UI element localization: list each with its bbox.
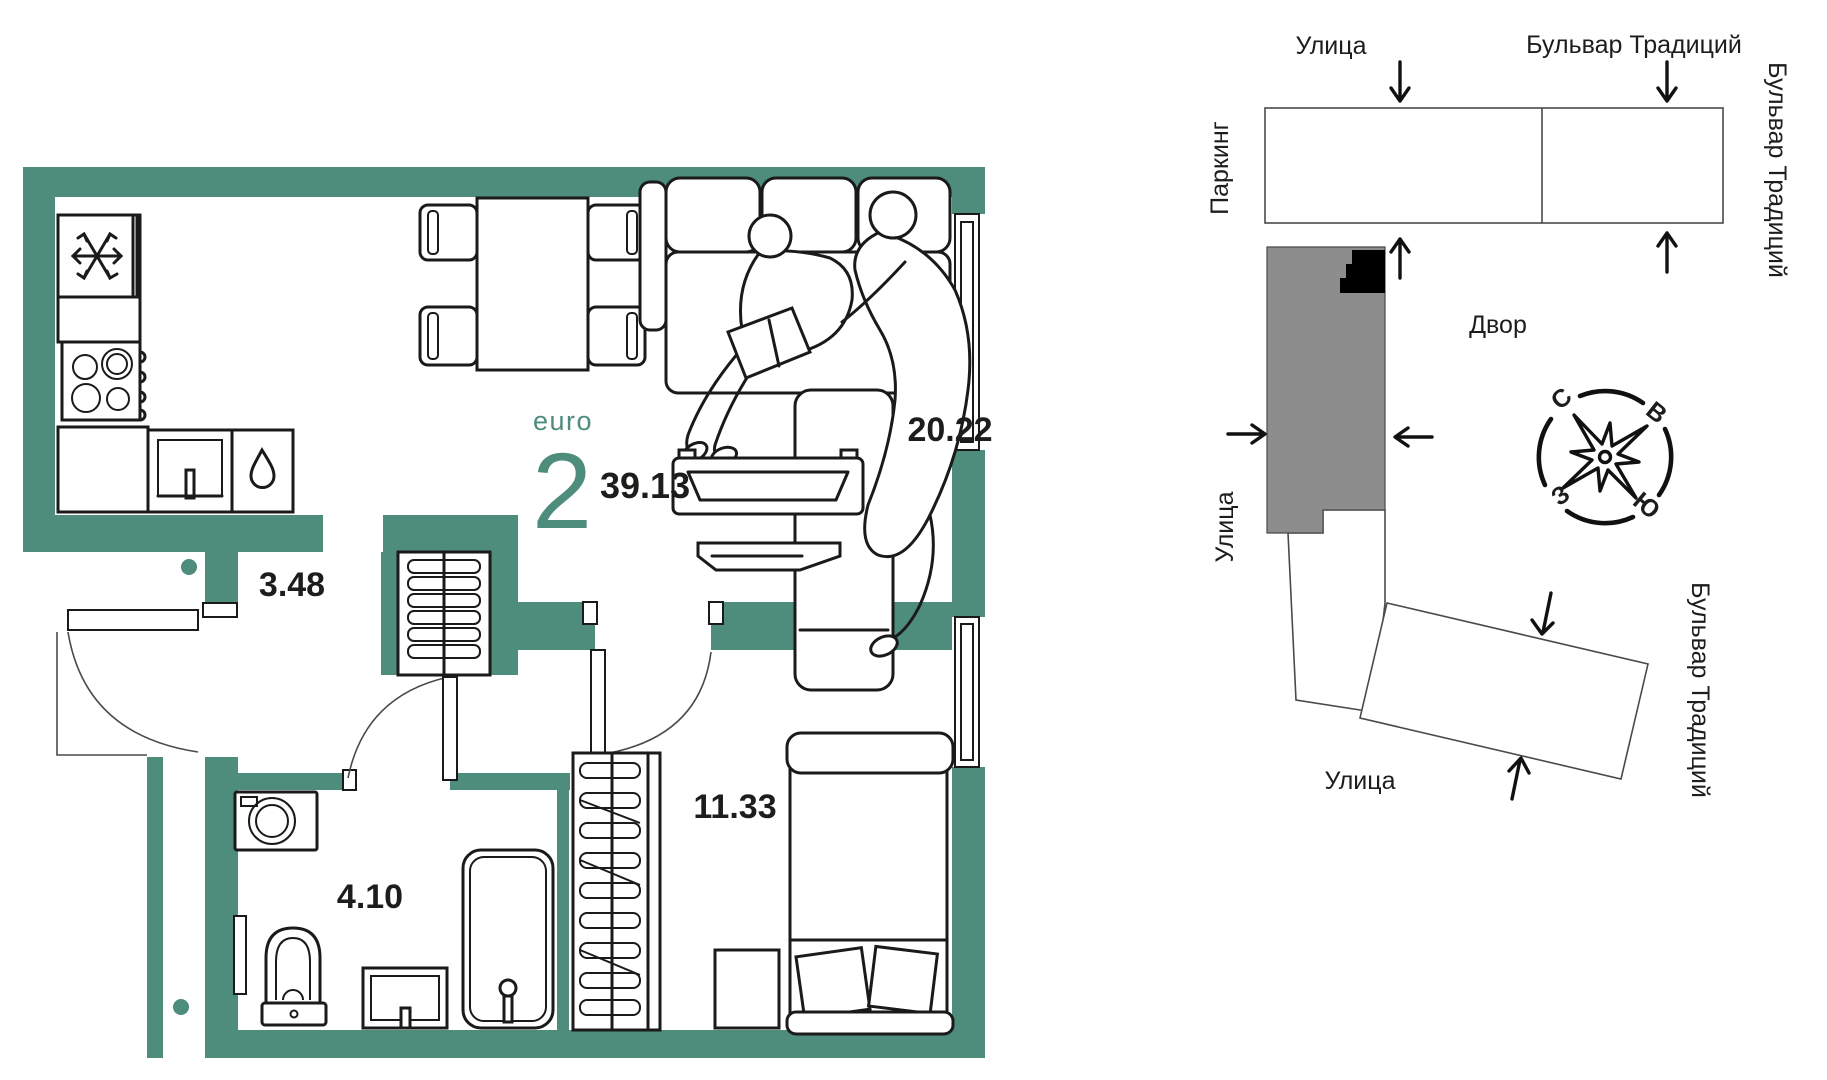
- label-street-top: Улица: [1296, 32, 1367, 60]
- bedroom-door-leaf: [591, 650, 605, 755]
- arrow-down-icon: [1658, 62, 1676, 101]
- floor-plan: euro 2 39.13 20.22 3.48 4.10 11.33: [23, 167, 993, 1058]
- bedroom-door-arc: [598, 652, 711, 755]
- compass-center: [1600, 452, 1611, 463]
- nightstand: [715, 950, 779, 1028]
- wall-left: [23, 167, 55, 552]
- bedroom: [573, 733, 953, 1034]
- bed: [787, 733, 953, 1034]
- arrow-up-icon: [1658, 233, 1676, 272]
- label-boulevard-right-lower: Бульвар Традиций: [1686, 582, 1714, 798]
- tv-unit: [673, 450, 863, 570]
- bed-pillow: [869, 946, 938, 1013]
- wall-hall-band: [23, 515, 323, 552]
- site-map: С В З Ю Улица Бульвар Традиций Бульвар Т…: [1206, 31, 1791, 799]
- jamb-entry: [203, 603, 237, 617]
- wall-dot-entry: [181, 559, 197, 575]
- wall-left-lower: [147, 757, 163, 1058]
- jamb-bedroom-left: [583, 602, 597, 624]
- area-bedroom: 11.33: [693, 788, 776, 826]
- arrow-down-icon: [1532, 593, 1553, 634]
- sofa-armrest: [640, 182, 666, 330]
- arrow-right-icon: [1228, 425, 1265, 443]
- plan-total-area: 39.13: [600, 465, 690, 506]
- wall-bath-west: [205, 757, 238, 1058]
- vestibule-boundary: [57, 632, 147, 755]
- bed-headboard: [787, 1012, 953, 1034]
- bath-door-leaf: [443, 677, 457, 780]
- washing-machine: [235, 792, 317, 850]
- bed-footboard: [787, 733, 953, 773]
- label-boulevard-right: Бульвар Традиций: [1763, 62, 1791, 278]
- building-north: [1265, 108, 1723, 223]
- wall-dot-lower: [173, 999, 189, 1015]
- bed-pillow: [796, 948, 870, 1019]
- wall-right-2: [952, 450, 985, 617]
- compass-east: В: [1641, 396, 1672, 429]
- wall-right-3: [952, 767, 985, 1058]
- wall-bath-top: [238, 773, 343, 790]
- dining-set: [420, 198, 645, 370]
- area-hall: 3.48: [259, 566, 325, 604]
- window-bedroom: [955, 617, 979, 767]
- tv-console: [673, 458, 863, 514]
- wall-divider-left: [490, 602, 595, 650]
- wall-entry-stub: [205, 552, 238, 607]
- kitchen-tap: [186, 470, 194, 498]
- compass-rose: С В З Ю: [1539, 382, 1672, 524]
- wall-closet-left: [381, 552, 398, 675]
- towel-rail: [234, 916, 246, 994]
- floorplan-page: euro 2 39.13 20.22 3.48 4.10 11.33: [0, 0, 1827, 1080]
- arrow-down-icon: [1391, 62, 1409, 101]
- wall-hall-band2: [383, 515, 518, 552]
- arrow-up-icon: [1509, 758, 1529, 799]
- floorplan-canvas: euro 2 39.13 20.22 3.48 4.10 11.33: [0, 0, 1827, 1080]
- wall-bath-top-right: [450, 773, 570, 790]
- label-parking: Паркинг: [1206, 121, 1234, 215]
- arrow-left-icon: [1395, 428, 1432, 446]
- compass-north: С: [1546, 382, 1578, 415]
- label-boulevard-top: Бульвар Традиций: [1526, 31, 1742, 59]
- building-tilted: [1360, 603, 1648, 779]
- wall-bath-east: [557, 773, 569, 1058]
- label-street-bottom: Улица: [1325, 767, 1396, 795]
- dining-table: [477, 198, 588, 370]
- sofa-back-cushion: [666, 178, 760, 252]
- bathtub: [463, 850, 553, 1028]
- wall-right-1: [952, 167, 985, 214]
- arrow-up-icon: [1391, 239, 1409, 278]
- jamb-bedroom-right: [709, 602, 723, 624]
- entry-door-arc: [68, 632, 198, 752]
- kitchen: [58, 215, 293, 512]
- kitchen-cabinet: [58, 297, 140, 342]
- bath-sink: [363, 968, 447, 1028]
- label-street-left: Улица: [1211, 491, 1239, 562]
- area-bath: 4.10: [337, 878, 403, 916]
- counter-corner: [58, 427, 148, 512]
- hall-closet: [398, 552, 490, 675]
- label-yard: Двор: [1469, 311, 1527, 339]
- bath-door-arc: [348, 677, 449, 778]
- wardrobe: [573, 753, 660, 1030]
- toilet: [262, 928, 326, 1025]
- entry-door-leaf: [68, 610, 198, 630]
- area-living: 20.22: [907, 411, 992, 449]
- plan-rooms-count: 2: [532, 430, 592, 551]
